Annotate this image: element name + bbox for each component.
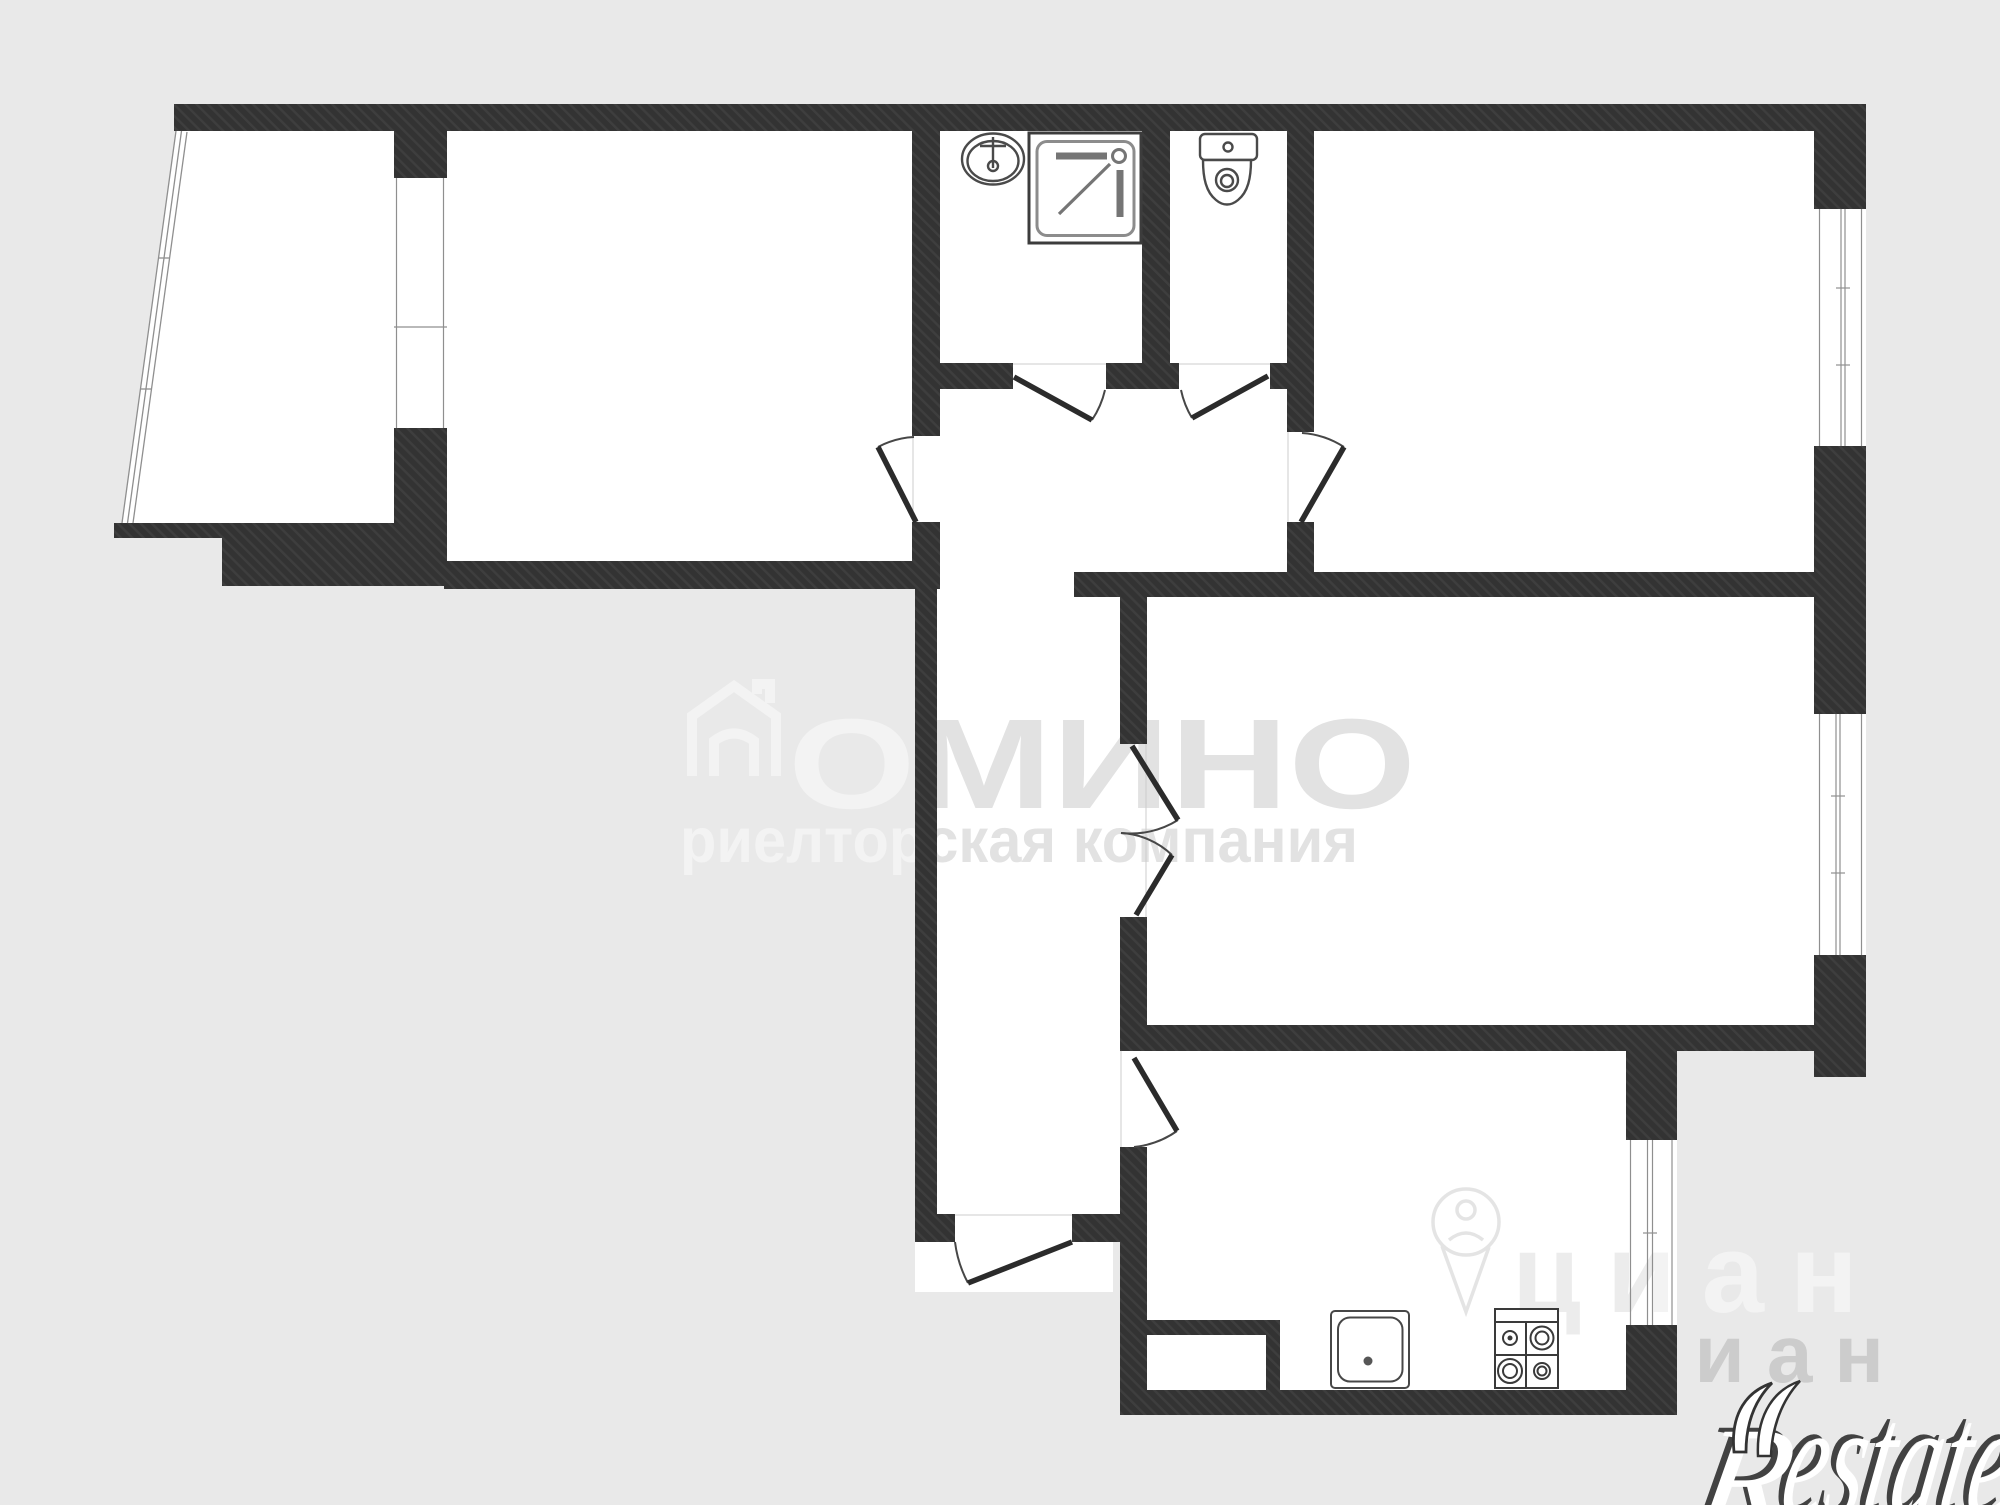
svg-text:estate: estate [1771,1369,2000,1505]
